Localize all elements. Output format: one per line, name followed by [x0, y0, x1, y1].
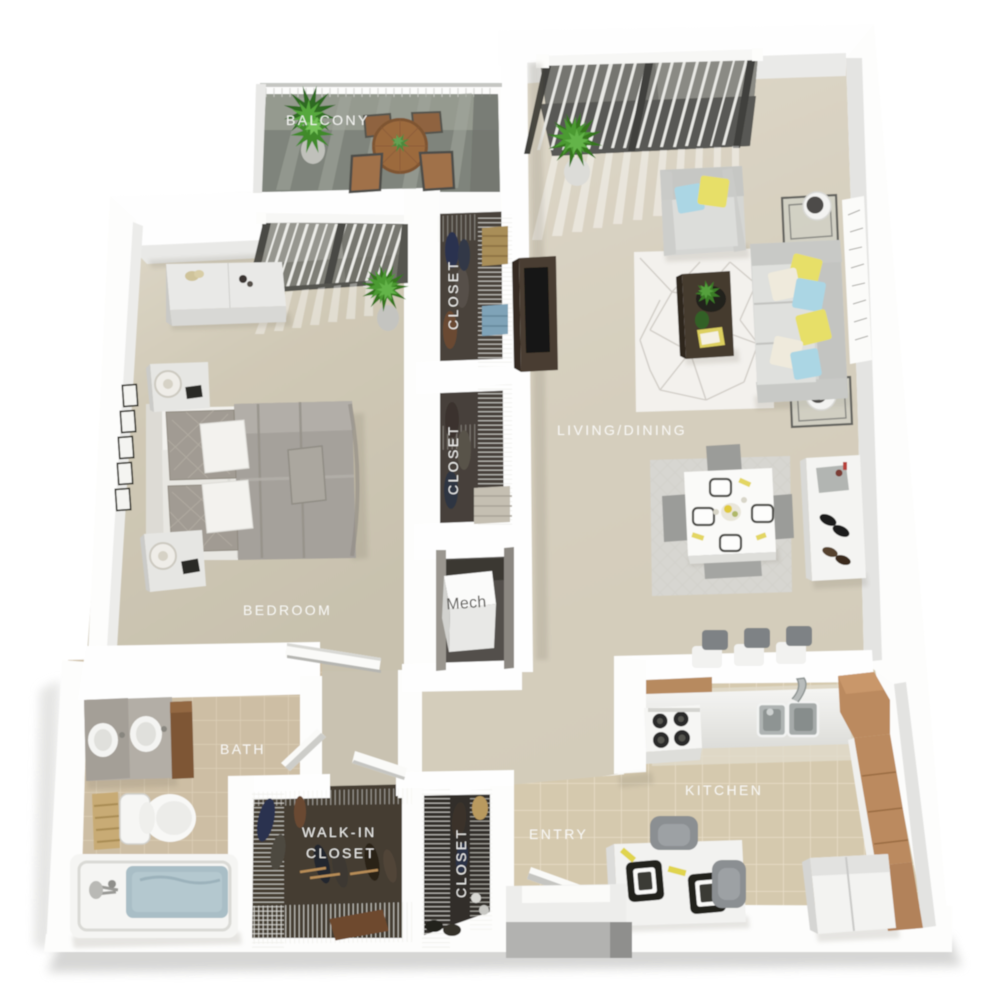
- svg-text:KITCHEN: KITCHEN: [685, 782, 763, 798]
- svg-text:Mech: Mech: [446, 594, 487, 614]
- svg-text:BEDROOM: BEDROOM: [243, 602, 332, 618]
- svg-text:BALCONY: BALCONY: [286, 112, 370, 128]
- svg-text:CLOSET: CLOSET: [445, 260, 461, 330]
- svg-text:BATH: BATH: [220, 741, 266, 757]
- svg-text:CLOSET: CLOSET: [445, 425, 461, 495]
- svg-text:ENTRY: ENTRY: [529, 826, 588, 842]
- svg-text:WALK-IN: WALK-IN: [302, 824, 377, 840]
- svg-text:CLOSET: CLOSET: [453, 828, 469, 898]
- svg-text:CLOSET: CLOSET: [306, 845, 376, 861]
- svg-text:LIVING/DINING: LIVING/DINING: [557, 422, 687, 438]
